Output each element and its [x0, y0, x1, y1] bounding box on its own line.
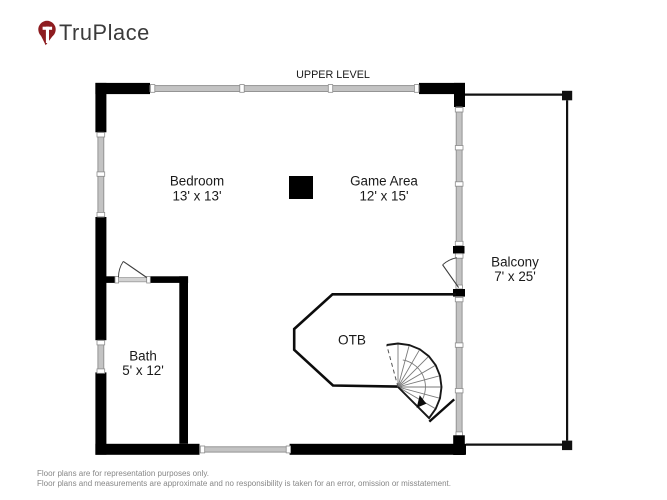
svg-text:TruPlace: TruPlace: [59, 20, 150, 45]
svg-text:Bath: Bath: [129, 348, 157, 363]
svg-text:Bedroom: Bedroom: [170, 174, 224, 189]
svg-text:Game Area: Game Area: [350, 174, 418, 189]
svg-text:13' x 13': 13' x 13': [172, 188, 221, 203]
svg-text:Floor plans and measurements a: Floor plans and measurements are approxi…: [37, 479, 451, 488]
svg-text:5' x 12': 5' x 12': [122, 363, 164, 378]
svg-text:UPPER LEVEL: UPPER LEVEL: [296, 69, 370, 81]
svg-text:Balcony: Balcony: [491, 254, 539, 269]
svg-text:Floor plans are for representa: Floor plans are for representation purpo…: [37, 469, 209, 478]
svg-text:7' x 25': 7' x 25': [494, 269, 536, 284]
svg-text:OTB: OTB: [338, 332, 366, 347]
svg-text:12' x 15': 12' x 15': [359, 188, 408, 203]
